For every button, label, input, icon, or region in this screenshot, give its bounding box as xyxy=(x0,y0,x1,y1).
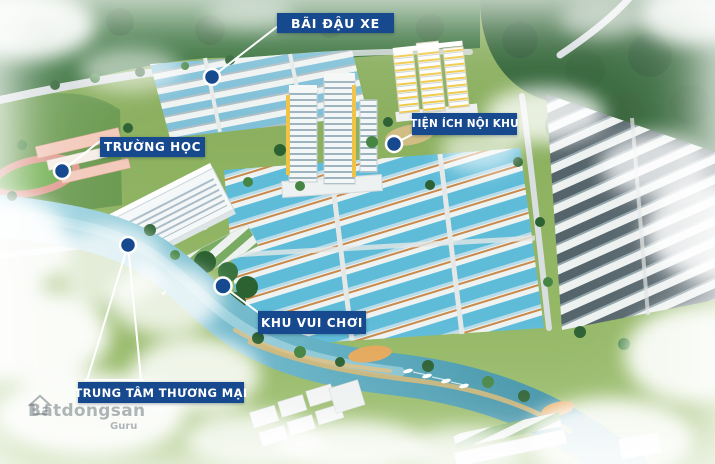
callout-label-shopping-mall: TRUNG TÂM THƯƠNG MẠI xyxy=(78,382,244,403)
masterplan-render: com.vn Batdongsan Guru BÃI ĐẬU XE TIỆN Í… xyxy=(0,0,715,464)
callout-line-parking-lot xyxy=(212,26,278,77)
marker-dot-school xyxy=(54,163,70,179)
callout-label-parking-lot: BÃI ĐẬU XE xyxy=(277,13,394,33)
marker-dot-internal-amenities xyxy=(386,136,402,152)
marker-dot-playground xyxy=(215,278,232,295)
callout-line-shopping-mall xyxy=(84,245,144,380)
marker-dot-shopping-mall xyxy=(120,237,136,253)
callout-label-internal-amenities: TIỆN ÍCH NỘI KHU xyxy=(412,113,517,135)
marker-dot-parking-lot xyxy=(204,69,220,85)
callout-label-playground: KHU VUI CHƠI xyxy=(258,311,366,334)
callout-label-school: TRƯỜNG HỌC xyxy=(100,137,205,157)
